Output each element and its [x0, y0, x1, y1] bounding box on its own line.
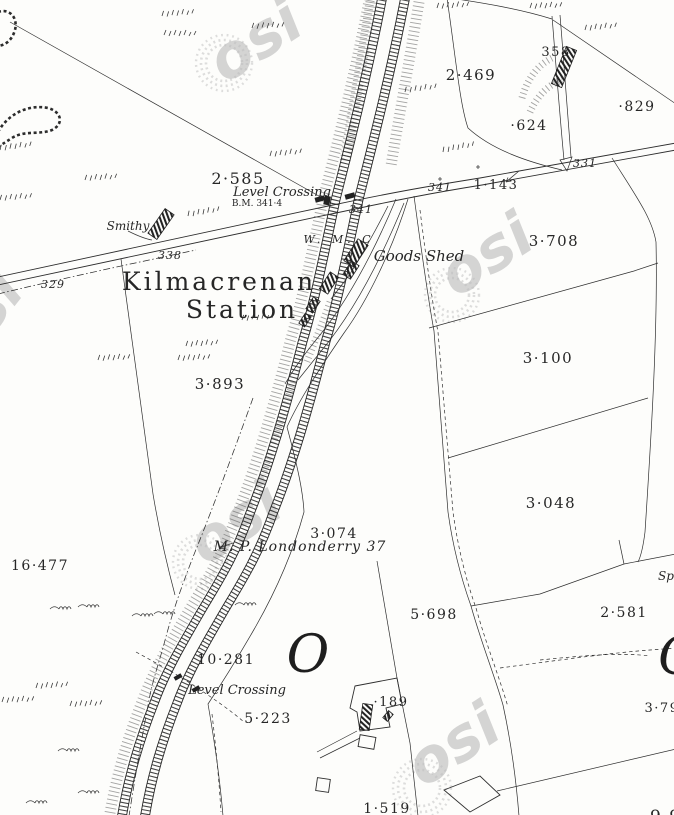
parcel-area: 3·074 — [310, 526, 358, 542]
parcel-area: 3·893 — [195, 375, 245, 393]
osi-watermark-text-bottom: osi — [393, 689, 514, 802]
parcel-area-partial: 3·79 — [645, 701, 674, 716]
parcel-area: 1·519 — [363, 801, 411, 815]
parcel-area: 2·581 — [600, 605, 648, 621]
building-number: 358 — [541, 45, 570, 60]
osi-watermark-text-mid: osi — [175, 467, 296, 580]
crossing-gate-south — [174, 673, 183, 680]
parcel-area: ·829 — [618, 99, 655, 115]
parcel-area: 3·048 — [526, 494, 576, 512]
road-level: 338 — [158, 249, 182, 262]
level-crossing-south-label: Level Crossing — [187, 683, 286, 698]
smithy-label: Smithy — [107, 219, 150, 233]
crossing-gate — [345, 192, 356, 199]
parcel-area: 5·223 — [244, 711, 292, 727]
parcel-area: ·189 — [374, 695, 409, 710]
parcel-area: 2·469 — [446, 66, 496, 84]
parcel-area: 3·100 — [523, 349, 573, 367]
parcel-area: 3·708 — [529, 232, 579, 250]
os-map-kilmacrenan-station: osi osi osi osi osi — [0, 0, 674, 815]
weighing-machine-label: W. M. C — [303, 233, 374, 246]
corner-numerals-partial: 9 9 — [650, 807, 674, 815]
house-189 — [359, 703, 373, 730]
milepost-label: M. P. Londonderry 37 — [213, 539, 387, 555]
osi-watermark-text-left-edge: osi — [0, 257, 39, 378]
spring-label-partial: Sp — [658, 569, 674, 583]
map-labels: Kilmacrenan Station Goods Shed Smithy W.… — [11, 45, 674, 815]
road-level: 341 — [349, 203, 373, 216]
townland-initial-o: O — [287, 625, 330, 685]
road-level: 331 — [573, 157, 597, 170]
parcel-area: 10·281 — [197, 652, 255, 668]
osi-watermark-text-top: osi — [195, 0, 316, 97]
parcel-area: 5·698 — [410, 607, 458, 623]
parcel-area: 16·477 — [11, 558, 69, 574]
parcel-area: 2·585 — [211, 169, 264, 188]
goods-shed-label: Goods Shed — [374, 247, 465, 265]
smithy-building — [148, 209, 174, 240]
road-level: 341 — [428, 181, 452, 194]
station-name-line1: Kilmacrenan — [122, 267, 316, 296]
station-name-line2: Station — [186, 295, 298, 324]
townland-initial-c-partial: C — [658, 627, 674, 687]
map-canvas: osi osi osi osi osi — [0, 0, 674, 815]
road-distance: 1·143 — [474, 178, 519, 193]
road-level: 329 — [41, 278, 65, 291]
bench-mark-label: B.M. 341·4 — [232, 199, 282, 209]
parcel-area: ·624 — [510, 118, 547, 134]
